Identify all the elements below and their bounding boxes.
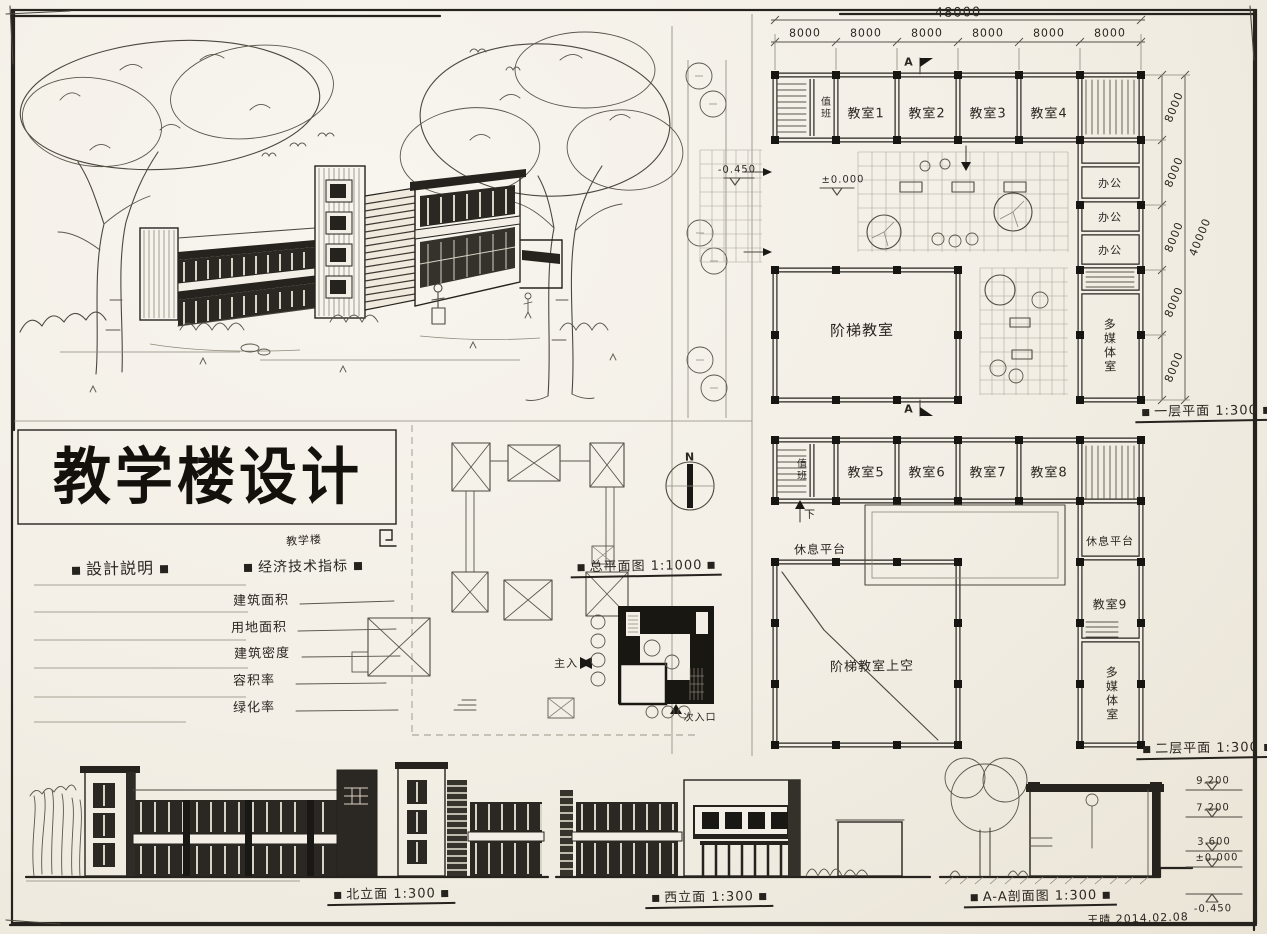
room-office: 办公 <box>1098 242 1122 258</box>
north-elevation <box>26 762 548 881</box>
room-office: 办公 <box>1098 175 1122 191</box>
design-notes-heading: 設計説明 <box>66 554 174 580</box>
north-label: N <box>685 450 695 463</box>
room-classroom: 教室7 <box>969 461 1007 481</box>
room-classroom: 教室1 <box>847 102 885 122</box>
birds-icon <box>262 49 520 156</box>
north-elevation-caption: 北立面 1:300 <box>327 882 455 906</box>
secondary-entrance-label: 次入口 <box>683 708 716 724</box>
level-outside: -0.450 <box>718 164 756 176</box>
room-lecture-hall: 阶梯教室 <box>830 319 894 341</box>
title-annotation: 教学楼 <box>285 531 322 549</box>
room-office: 办公 <box>1098 209 1122 225</box>
room-classroom9: 教室9 <box>1093 595 1128 613</box>
indicators-heading: 经济技术指标 <box>238 555 368 577</box>
street-trees <box>686 63 727 401</box>
perspective-building <box>140 166 562 326</box>
left-tree-icon <box>16 31 340 374</box>
sheet-title: 教学楼设计 <box>16 425 400 529</box>
room-classroom: 教室6 <box>908 461 946 481</box>
room-multimedia-2: 多媒体室 <box>1103 666 1121 722</box>
room-duty: 值班 <box>816 96 831 120</box>
indicator-item: 建筑密度 <box>234 642 290 662</box>
section-mark-label: A <box>904 55 914 68</box>
foreground-landscape <box>20 312 616 392</box>
site-plan <box>352 425 714 735</box>
rest-platform-left: 休息平台 <box>794 540 846 558</box>
down-label: 下 <box>804 506 816 522</box>
void-label: 阶梯教室上空 <box>830 655 914 675</box>
floor1-caption: 一层平面 1:300 <box>1135 399 1267 423</box>
dim-total-width: 48000 <box>935 5 982 21</box>
floor2-caption: 二层平面 1:300 <box>1136 736 1267 760</box>
room-classroom: 教室5 <box>847 461 885 481</box>
level-value: 7.200 <box>1196 802 1230 814</box>
section-mark-label: A <box>904 402 914 415</box>
dim-bay: 8000 <box>850 26 882 40</box>
room-multimedia: 多媒体室 <box>1101 318 1119 374</box>
site-plan-caption: 总平面图 1:1000 <box>570 554 721 579</box>
construction-lines <box>14 14 752 756</box>
north-arrow-icon <box>666 462 714 510</box>
dim-bay: 8000 <box>972 26 1004 40</box>
spiral-logo-icon <box>380 530 396 546</box>
west-elevation <box>556 780 930 877</box>
section-caption: A-A剖面图 1:300 <box>964 884 1117 909</box>
floor2-plan <box>771 436 1145 749</box>
level-value: 3.600 <box>1197 836 1231 848</box>
level-value: -0.450 <box>1194 903 1232 915</box>
level-inside: ±0.000 <box>821 174 864 186</box>
perspective-sketch <box>16 31 686 401</box>
indicator-item: 容积率 <box>233 669 275 689</box>
rest-platform-right: 休息平台 <box>1086 533 1134 550</box>
room-classroom: 教室3 <box>969 102 1007 122</box>
dim-bay: 8000 <box>1094 26 1126 40</box>
level-value: ±0.000 <box>1195 852 1238 864</box>
new-building-mass <box>580 606 714 714</box>
indicator-item: 绿化率 <box>233 696 275 716</box>
dim-bay: 8000 <box>911 26 943 40</box>
indicator-item: 建筑面积 <box>233 589 289 609</box>
room-classroom: 教室4 <box>1030 102 1068 122</box>
main-entrance-label: 主入 <box>554 655 578 671</box>
room-classroom: 教室8 <box>1030 461 1068 481</box>
dim-bay: 8000 <box>1033 26 1065 40</box>
drawing-sheet: 教学楼设计 教学楼 設計説明 经济技术指标 建筑面积 用地面积 建筑密度 容积率… <box>0 0 1267 934</box>
indicator-item: 用地面积 <box>231 616 287 636</box>
dim-bay: 8000 <box>789 26 821 40</box>
level-value: 9.200 <box>1196 775 1230 787</box>
room-classroom: 教室2 <box>908 102 946 122</box>
west-elevation-caption: 西立面 1:300 <box>645 885 773 909</box>
room-duty-2: 值班 <box>792 458 807 482</box>
